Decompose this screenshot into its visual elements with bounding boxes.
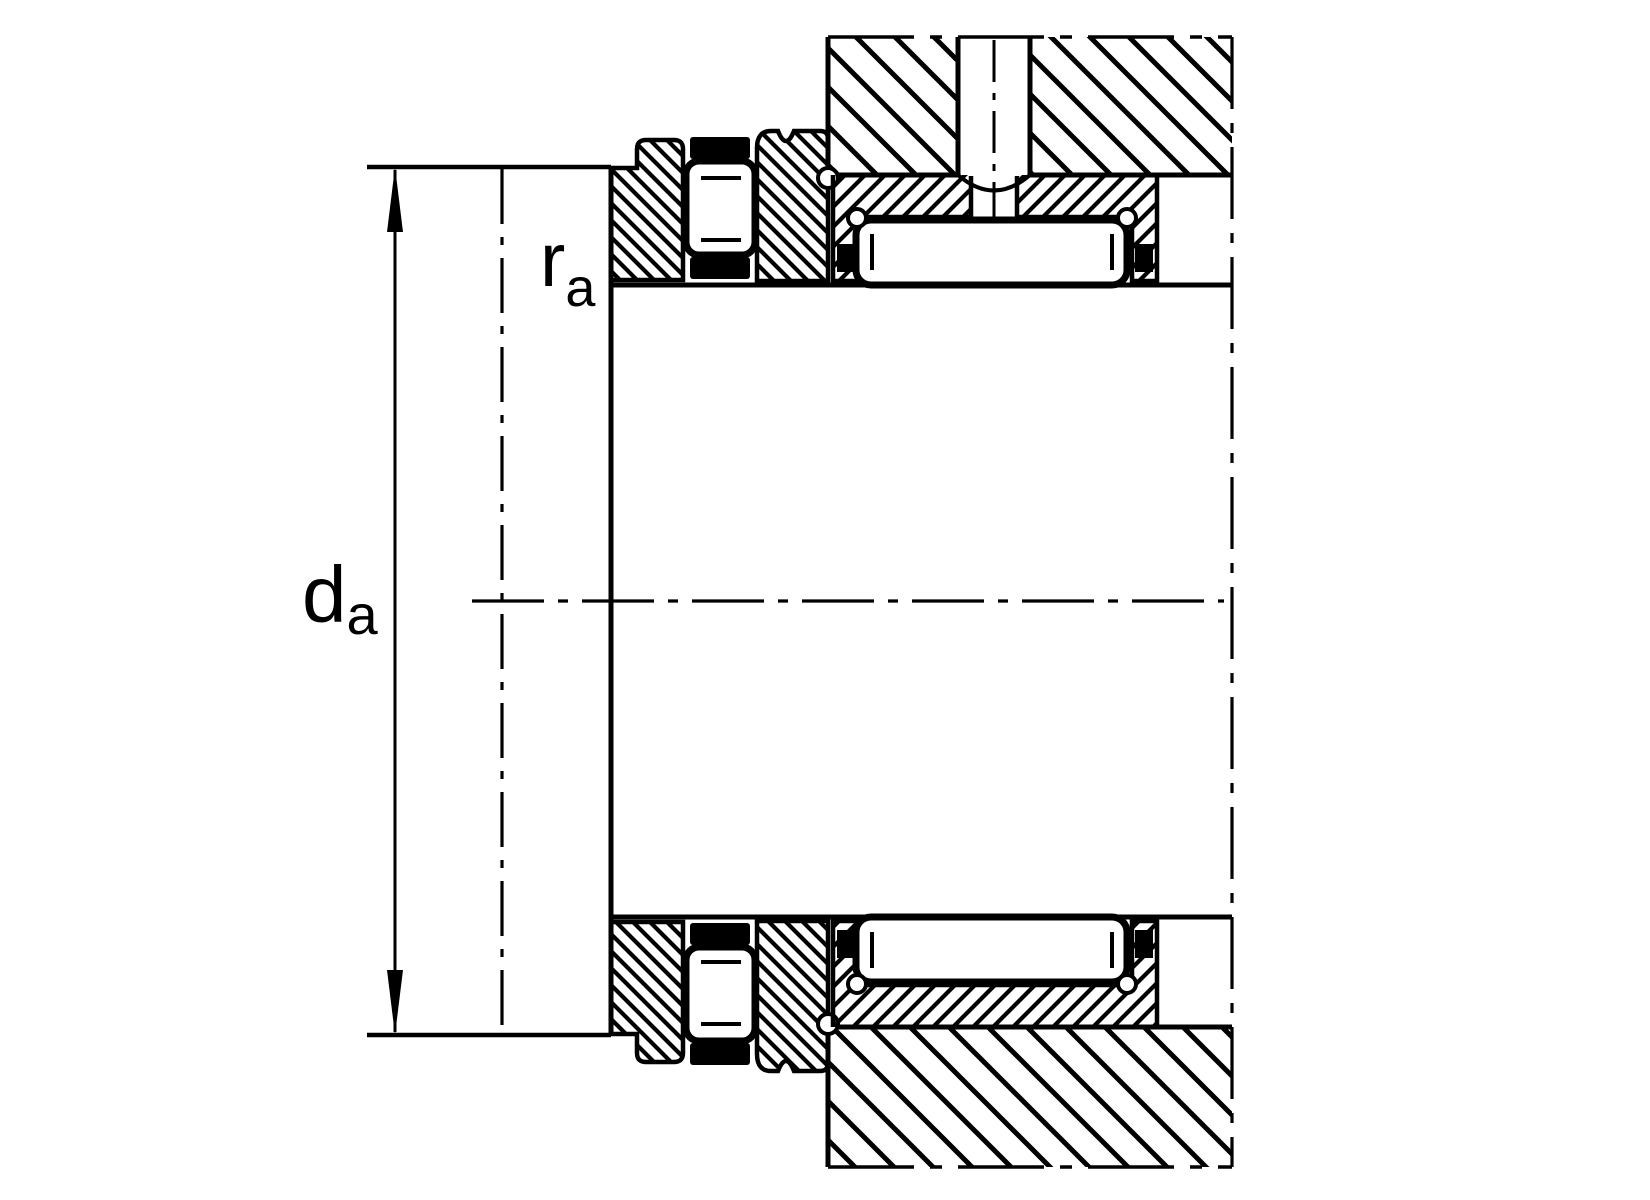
thrust-washer-bottom <box>611 922 683 1062</box>
centering-ring-top <box>757 131 828 281</box>
label-da-main: d <box>302 550 347 639</box>
housing-bottom-hatch <box>828 1027 1232 1167</box>
thrust-washer-top <box>611 140 683 280</box>
cage-pin-bottom-right <box>1118 975 1136 993</box>
radial-roller-bottom <box>856 917 1127 982</box>
outer-ring-top-body-right <box>1017 175 1157 217</box>
cage-pin-bottom-left <box>848 975 866 993</box>
axial-cage-top-band-inner <box>690 257 750 279</box>
technical-drawing-page: da ra <box>0 0 1650 1200</box>
label-da: da <box>302 550 379 646</box>
cage-pin-top-right <box>1118 209 1136 227</box>
axial-bearing-bottom <box>611 921 838 1071</box>
radial-cage-top-left <box>837 244 855 272</box>
centering-ring-bottom <box>757 921 828 1071</box>
label-ra: ra <box>540 218 596 318</box>
shaft <box>367 167 1232 1035</box>
axial-cage-top-band-outer <box>690 137 750 159</box>
cage-pin-top-left <box>848 209 866 227</box>
bearing-section-drawing: da ra <box>0 0 1650 1200</box>
housing-top-hatch-left <box>828 37 958 175</box>
label-da-sub: a <box>347 583 379 646</box>
radial-bearing-bottom <box>833 917 1157 1027</box>
radial-roller-top <box>856 220 1127 285</box>
axial-cage-bottom-band-inner <box>690 923 750 945</box>
radial-cage-bottom-right <box>1135 930 1153 958</box>
label-ra-sub: a <box>565 258 596 318</box>
radial-cage-bottom-left <box>837 930 855 958</box>
housing-top-hatch-right <box>1030 37 1232 175</box>
radial-cage-top-right <box>1135 244 1153 272</box>
housing-bottom <box>828 1027 1232 1167</box>
outer-ring-bottom-body <box>833 985 1157 1027</box>
dimension-da <box>387 167 403 1035</box>
axial-cage-bottom-band-outer <box>690 1043 750 1065</box>
axial-bearing-top <box>611 131 838 281</box>
da-arrowhead-bottom <box>387 970 403 1035</box>
label-ra-main: r <box>540 218 565 303</box>
da-arrowhead-top <box>387 167 403 232</box>
